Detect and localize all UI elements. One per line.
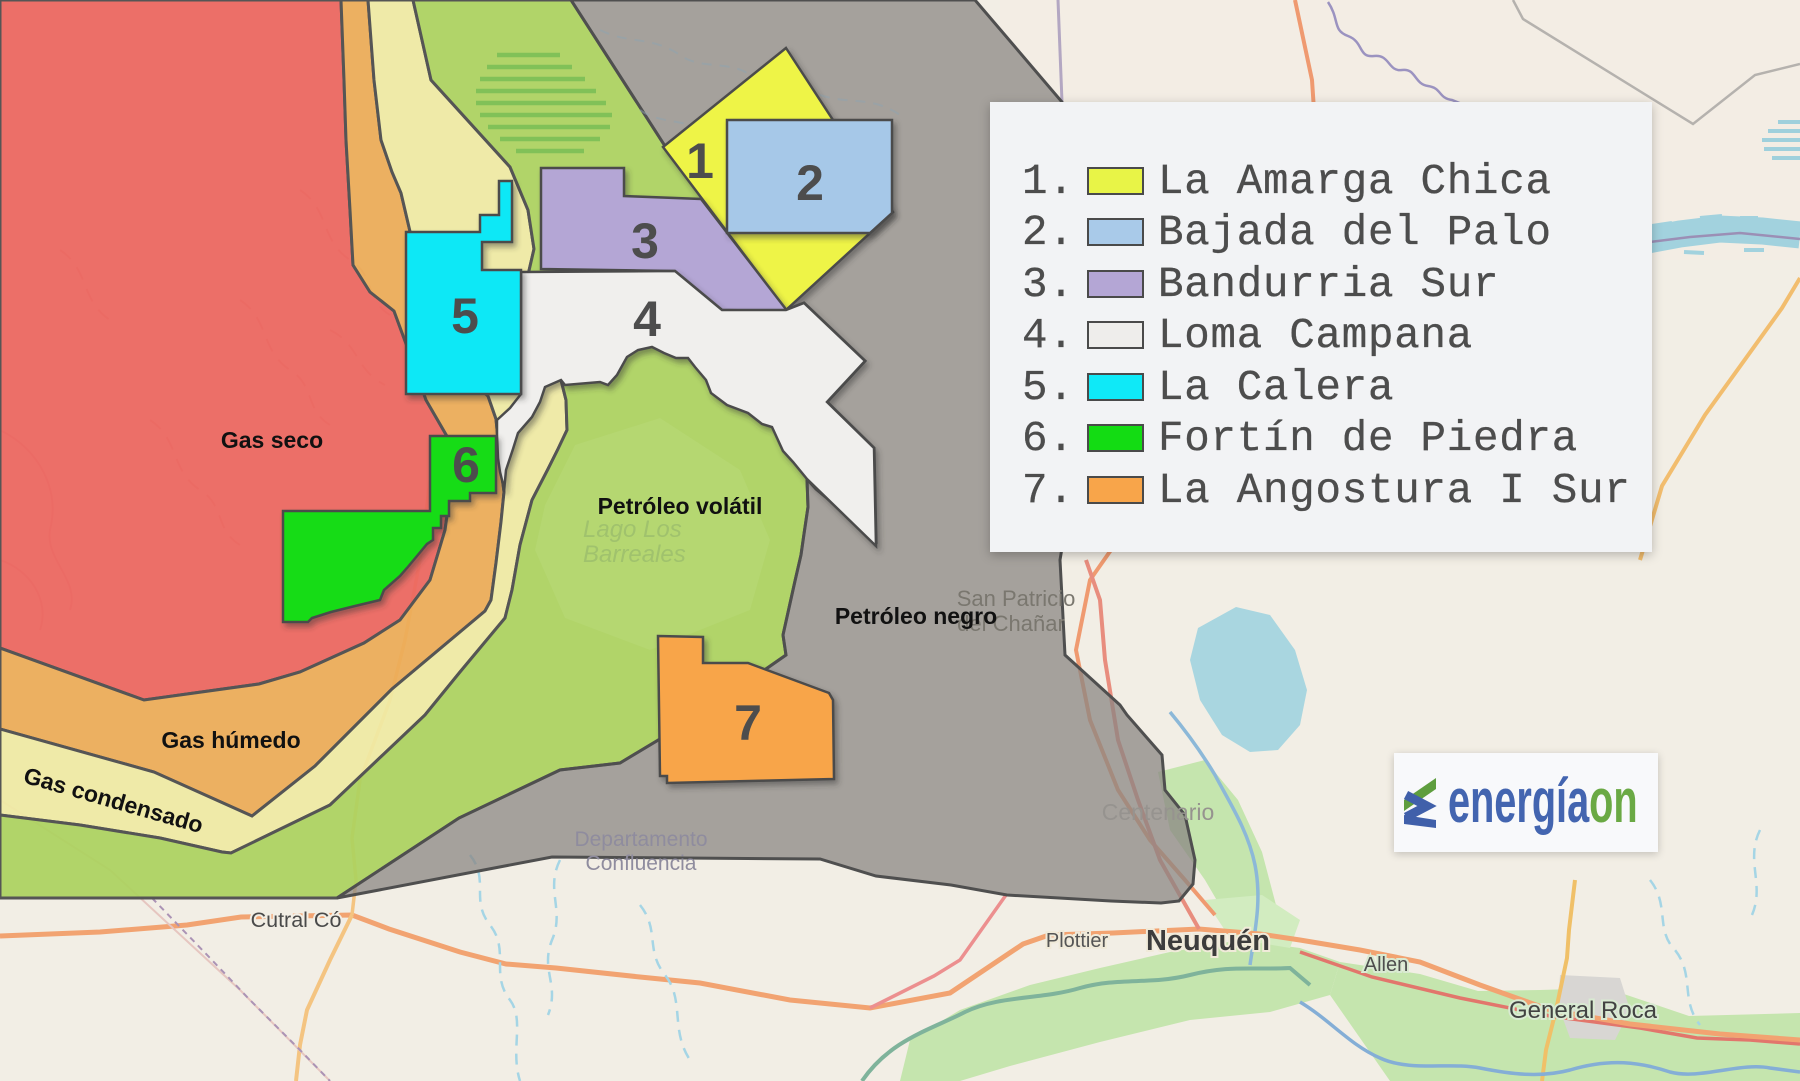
svg-text:Lago Los: Lago Los [583, 516, 682, 543]
svg-text:Centenario: Centenario [1102, 799, 1215, 825]
svg-text:2: 2 [796, 155, 824, 211]
svg-text:6: 6 [452, 437, 480, 493]
svg-text:Petróleo volátil: Petróleo volátil [598, 493, 763, 519]
svg-text:General Roca: General Roca [1509, 997, 1658, 1024]
svg-text:3: 3 [631, 213, 659, 269]
svg-text:4: 4 [633, 291, 661, 347]
svg-text:7: 7 [734, 695, 762, 751]
svg-text:Allen: Allen [1364, 954, 1408, 976]
svg-text:Barreales: Barreales [583, 541, 686, 568]
svg-text:1: 1 [686, 133, 714, 189]
svg-text:Cutral Có: Cutral Có [251, 908, 342, 932]
svg-text:Departamento: Departamento [574, 828, 707, 851]
svg-text:Gas seco: Gas seco [221, 427, 323, 453]
svg-text:Gas húmedo: Gas húmedo [161, 727, 300, 753]
svg-text:Neuquén: Neuquén [1146, 925, 1270, 957]
svg-text:Confluencia: Confluencia [586, 852, 697, 875]
svg-text:5: 5 [451, 288, 479, 344]
svg-text:Petróleo negro: Petróleo negro [835, 603, 997, 629]
svg-text:Plottier: Plottier [1046, 930, 1109, 952]
